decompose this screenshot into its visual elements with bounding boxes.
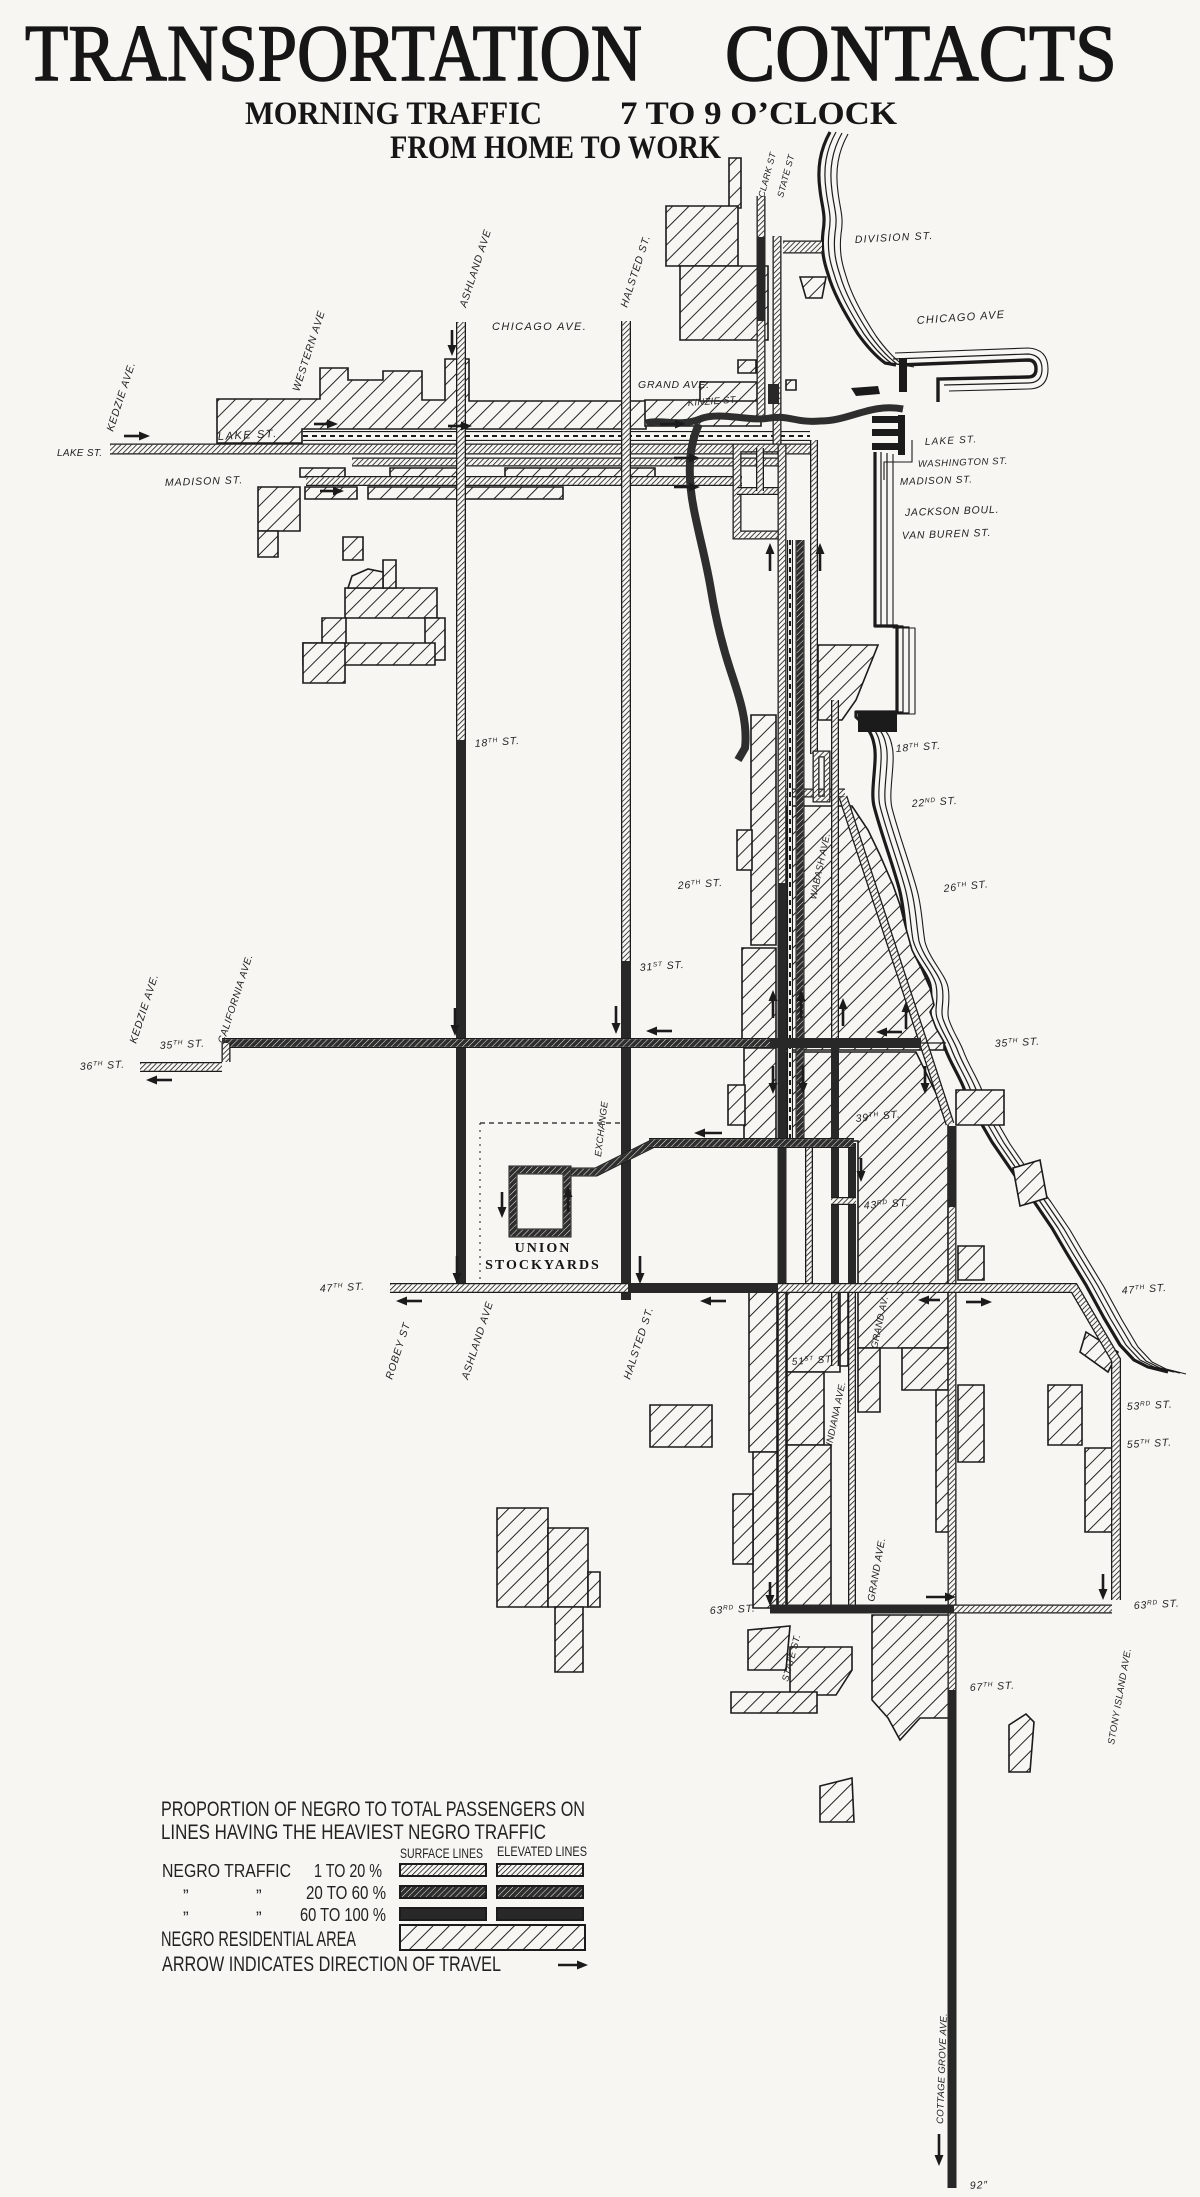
svg-text:1 TO 20 %: 1 TO 20 % (314, 1861, 382, 1881)
svg-text:”: ” (256, 1886, 262, 1905)
svg-text:ARROW INDICATES DIRECTION OF T: ARROW INDICATES DIRECTION OF TRAVEL (162, 1953, 501, 1976)
svg-text:”: ” (183, 1908, 189, 1927)
svg-text:NEGRO TRAFFIC: NEGRO TRAFFIC (162, 1861, 291, 1881)
svg-text:20 TO 60 %: 20 TO 60 % (306, 1883, 386, 1903)
svg-text:SURFACE LINES: SURFACE LINES (400, 1846, 483, 1861)
svg-text:PROPORTION OF NEGRO TO TOTAL P: PROPORTION OF NEGRO TO TOTAL PASSENGERS … (161, 1798, 585, 1821)
svg-text:MORNING TRAFFIC: MORNING TRAFFIC (245, 96, 542, 132)
svg-text:CONTACTS: CONTACTS (725, 10, 1117, 98)
svg-text:TRANSPORTATION: TRANSPORTATION (25, 10, 642, 98)
svg-text:FROM HOME TO WORK: FROM HOME TO WORK (390, 130, 721, 166)
svg-text:CHICAGO AVE.: CHICAGO AVE. (492, 321, 587, 333)
svg-text:ELEVATED LINES: ELEVATED LINES (497, 1844, 587, 1859)
svg-text:NEGRO RESIDENTIAL AREA: NEGRO RESIDENTIAL AREA (161, 1928, 356, 1951)
svg-text:LAKE ST.: LAKE ST. (57, 448, 102, 459)
svg-text:LINES HAVING THE HEAVIEST NEGR: LINES HAVING THE HEAVIEST NEGRO TRAFFIC (161, 1821, 546, 1844)
svg-text:”: ” (183, 1886, 189, 1905)
svg-text:92″: 92″ (970, 2179, 989, 2192)
svg-text:STOCKYARDS: STOCKYARDS (485, 1258, 601, 1273)
svg-text:”: ” (256, 1908, 262, 1927)
svg-text:UNION: UNION (515, 1241, 572, 1256)
svg-text:60 TO 100 %: 60 TO 100 % (300, 1905, 386, 1925)
svg-text:GRAND AVE.: GRAND AVE. (638, 379, 710, 391)
svg-text:7 TO 9 O’CLOCK: 7 TO 9 O’CLOCK (620, 96, 897, 132)
